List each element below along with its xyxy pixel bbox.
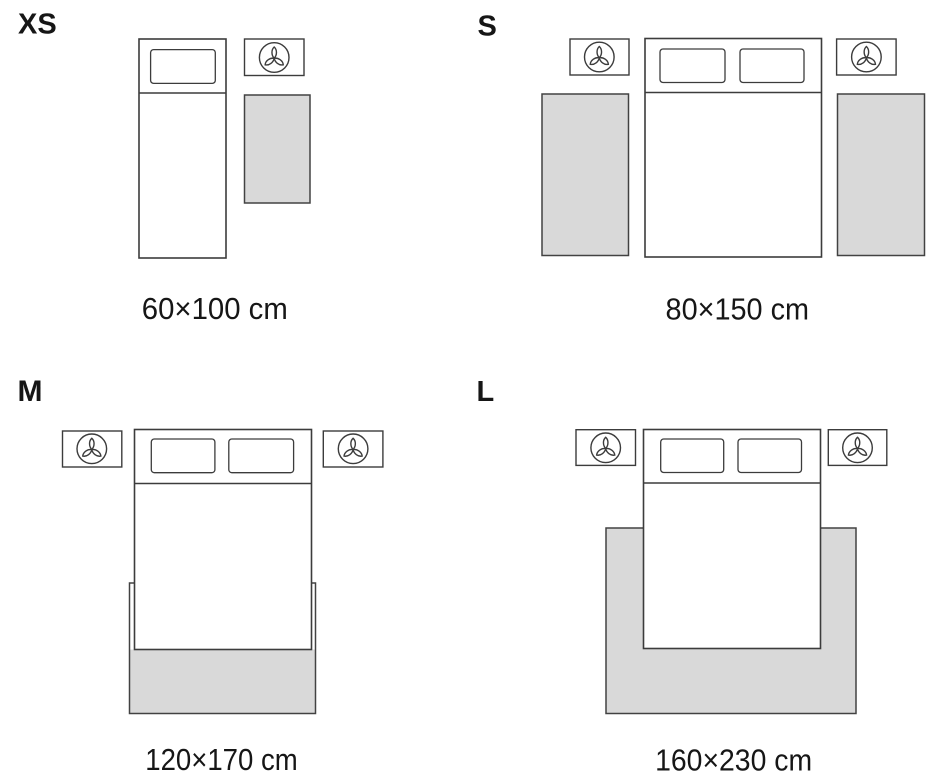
svg-text:XS: XS	[18, 9, 57, 41]
svg-text:160×230 cm: 160×230 cm	[655, 743, 812, 778]
svg-text:S: S	[478, 11, 497, 43]
svg-text:60×100 cm: 60×100 cm	[142, 291, 288, 326]
svg-text:120×170 cm: 120×170 cm	[145, 742, 298, 777]
svg-text:L: L	[477, 376, 495, 408]
svg-text:80×150 cm: 80×150 cm	[666, 292, 810, 327]
svg-text:M: M	[18, 375, 43, 408]
